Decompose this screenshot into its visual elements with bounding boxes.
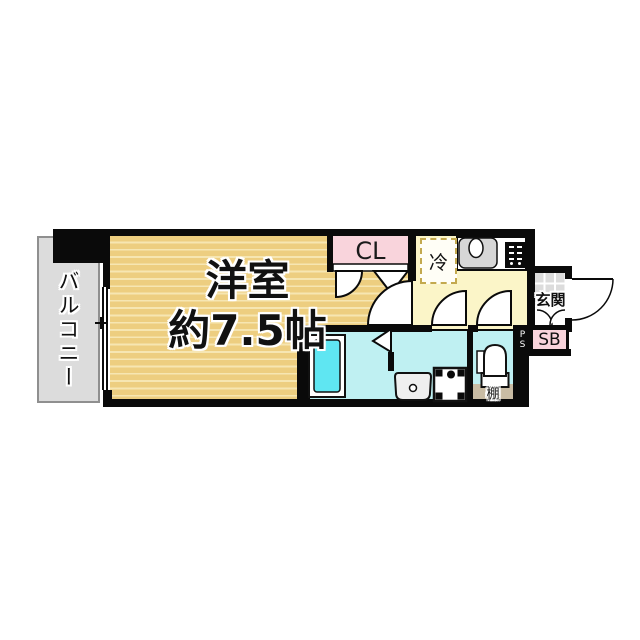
shelf-label: 棚 (472, 384, 514, 400)
washing-machine-pan (434, 368, 466, 401)
toilet-door-swing (477, 291, 511, 325)
bath-folding-door (373, 329, 391, 352)
entrance-step-arc-right (550, 310, 565, 325)
room-door-swing (368, 281, 412, 325)
toilet (477, 345, 509, 387)
main-room-name: 洋室 (205, 256, 289, 306)
main-room-label: 洋室 約7.5帖 (140, 252, 355, 360)
washbasin-drain (410, 385, 417, 392)
main-room-size: 約7.5帖 (168, 306, 326, 356)
floor-plan: P S (0, 0, 640, 640)
balcony-label: バルコニー (48, 255, 88, 405)
shoe-box-label: SB (530, 327, 569, 352)
front-door-swing (572, 279, 613, 320)
entrance-label: 玄関 (531, 289, 570, 309)
refrigerator-label: 冷 (420, 238, 457, 284)
stove (505, 242, 526, 268)
sink-bowl (469, 239, 483, 258)
washroom-door-swing (432, 291, 466, 325)
closet-label: CL (333, 236, 408, 266)
